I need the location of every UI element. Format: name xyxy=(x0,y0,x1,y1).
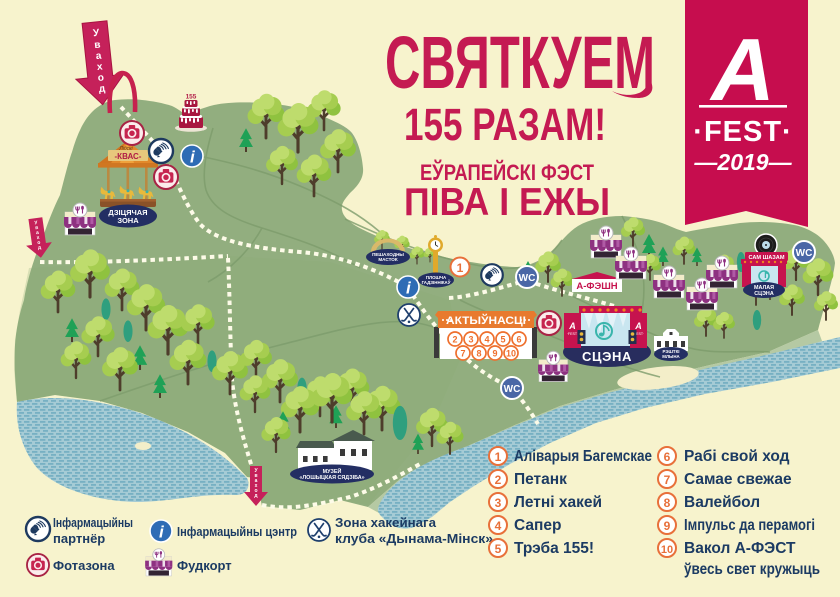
svg-text:МЛЫНА: МЛЫНА xyxy=(662,354,680,359)
svg-text:Самае свежае: Самае свежае xyxy=(684,471,792,488)
svg-text:A: A xyxy=(709,20,775,119)
svg-text:в: в xyxy=(94,40,101,52)
svg-text:Сапер: Сапер xyxy=(514,517,561,534)
svg-text:2: 2 xyxy=(452,335,457,345)
svg-text:Рабі свой ход: Рабі свой ход xyxy=(684,448,790,465)
svg-text:155: 155 xyxy=(186,94,197,101)
svg-text:5: 5 xyxy=(495,542,502,556)
svg-text:партнёр: партнёр xyxy=(53,531,105,546)
svg-text:A: A xyxy=(568,321,576,331)
svg-text:·FEST·: ·FEST· xyxy=(693,116,792,148)
svg-text:клуба «Дынама-Мінск»: клуба «Дынама-Мінск» xyxy=(335,531,493,546)
svg-text:Петанк: Петанк xyxy=(514,471,567,488)
svg-text:5: 5 xyxy=(500,335,505,345)
svg-text:8: 8 xyxy=(476,349,481,359)
svg-text:Інфармацыйны цэнтр: Інфармацыйны цэнтр xyxy=(177,524,297,539)
svg-text:Фотазона: Фотазона xyxy=(53,558,115,573)
svg-text:Зона хакейнага: Зона хакейнага xyxy=(335,515,437,530)
svg-text:«ЛОШЫЦКАЯ СЯДЗІБА»: «ЛОШЫЦКАЯ СЯДЗІБА» xyxy=(299,475,364,481)
svg-text:A: A xyxy=(634,321,642,331)
svg-text:10: 10 xyxy=(506,349,516,359)
svg-text:А-ФЭШН: А-ФЭШН xyxy=(576,281,617,292)
svg-text:СВЯТКУЕМ: СВЯТКУЕМ xyxy=(385,21,655,104)
svg-text:ГАДЗІННІКАЎ: ГАДЗІННІКАЎ xyxy=(422,280,451,285)
svg-text:ўвесь свет кружыць: ўвесь свет кружыць xyxy=(684,561,820,578)
svg-text:Лідскі: Лідскі xyxy=(118,146,133,152)
svg-text:ПІВА І ЕЖЫ: ПІВА І ЕЖЫ xyxy=(404,181,610,224)
svg-text:9: 9 xyxy=(664,519,671,533)
svg-text:СЦЭНА: СЦЭНА xyxy=(582,349,632,364)
svg-text:Трэба 155!: Трэба 155! xyxy=(514,540,594,557)
svg-text:6: 6 xyxy=(664,450,671,464)
svg-text:155 РАЗАМ!: 155 РАЗАМ! xyxy=(404,99,606,150)
svg-text:·FEST·: ·FEST· xyxy=(567,332,579,336)
svg-text:ЗОНА: ЗОНА xyxy=(117,216,139,225)
svg-text:Валейбол: Валейбол xyxy=(684,494,760,511)
svg-text:о: о xyxy=(97,72,104,84)
svg-text:7: 7 xyxy=(460,349,465,359)
svg-text:2: 2 xyxy=(495,473,502,487)
svg-text:Імпульс да перамогі: Імпульс да перамогі xyxy=(684,517,815,534)
svg-text:МУЗЕЙ: МУЗЕЙ xyxy=(323,467,342,475)
svg-text:Летні хакей: Летні хакей xyxy=(514,494,602,511)
svg-text:Аліварыя Багемскае: Аліварыя Багемскае xyxy=(514,448,652,465)
svg-text:—2019—: —2019— xyxy=(693,149,792,175)
svg-text:4: 4 xyxy=(484,335,489,345)
svg-text:7: 7 xyxy=(664,473,671,487)
svg-text:9: 9 xyxy=(492,349,497,359)
svg-text:1: 1 xyxy=(457,261,464,275)
svg-text:3: 3 xyxy=(468,335,473,345)
svg-text:4: 4 xyxy=(495,519,502,533)
svg-text:8: 8 xyxy=(664,496,671,510)
svg-text:Інфармацыйны: Інфармацыйны xyxy=(53,515,133,530)
svg-text:10: 10 xyxy=(661,544,673,556)
svg-text:Вакол А-ФЭСТ: Вакол А-ФЭСТ xyxy=(684,540,796,557)
svg-text:АКТЫЎНАСЦІ: АКТЫЎНАСЦІ xyxy=(446,314,526,327)
svg-text:СЦЭНА: СЦЭНА xyxy=(754,291,774,297)
svg-text:МАСТОК: МАСТОК xyxy=(378,257,397,262)
svg-text:3: 3 xyxy=(495,496,502,510)
svg-text:6: 6 xyxy=(516,335,521,345)
svg-text:Фудкорт: Фудкорт xyxy=(177,558,232,573)
svg-text:-КВАС-: -КВАС- xyxy=(115,152,142,161)
svg-text:1: 1 xyxy=(495,450,502,464)
